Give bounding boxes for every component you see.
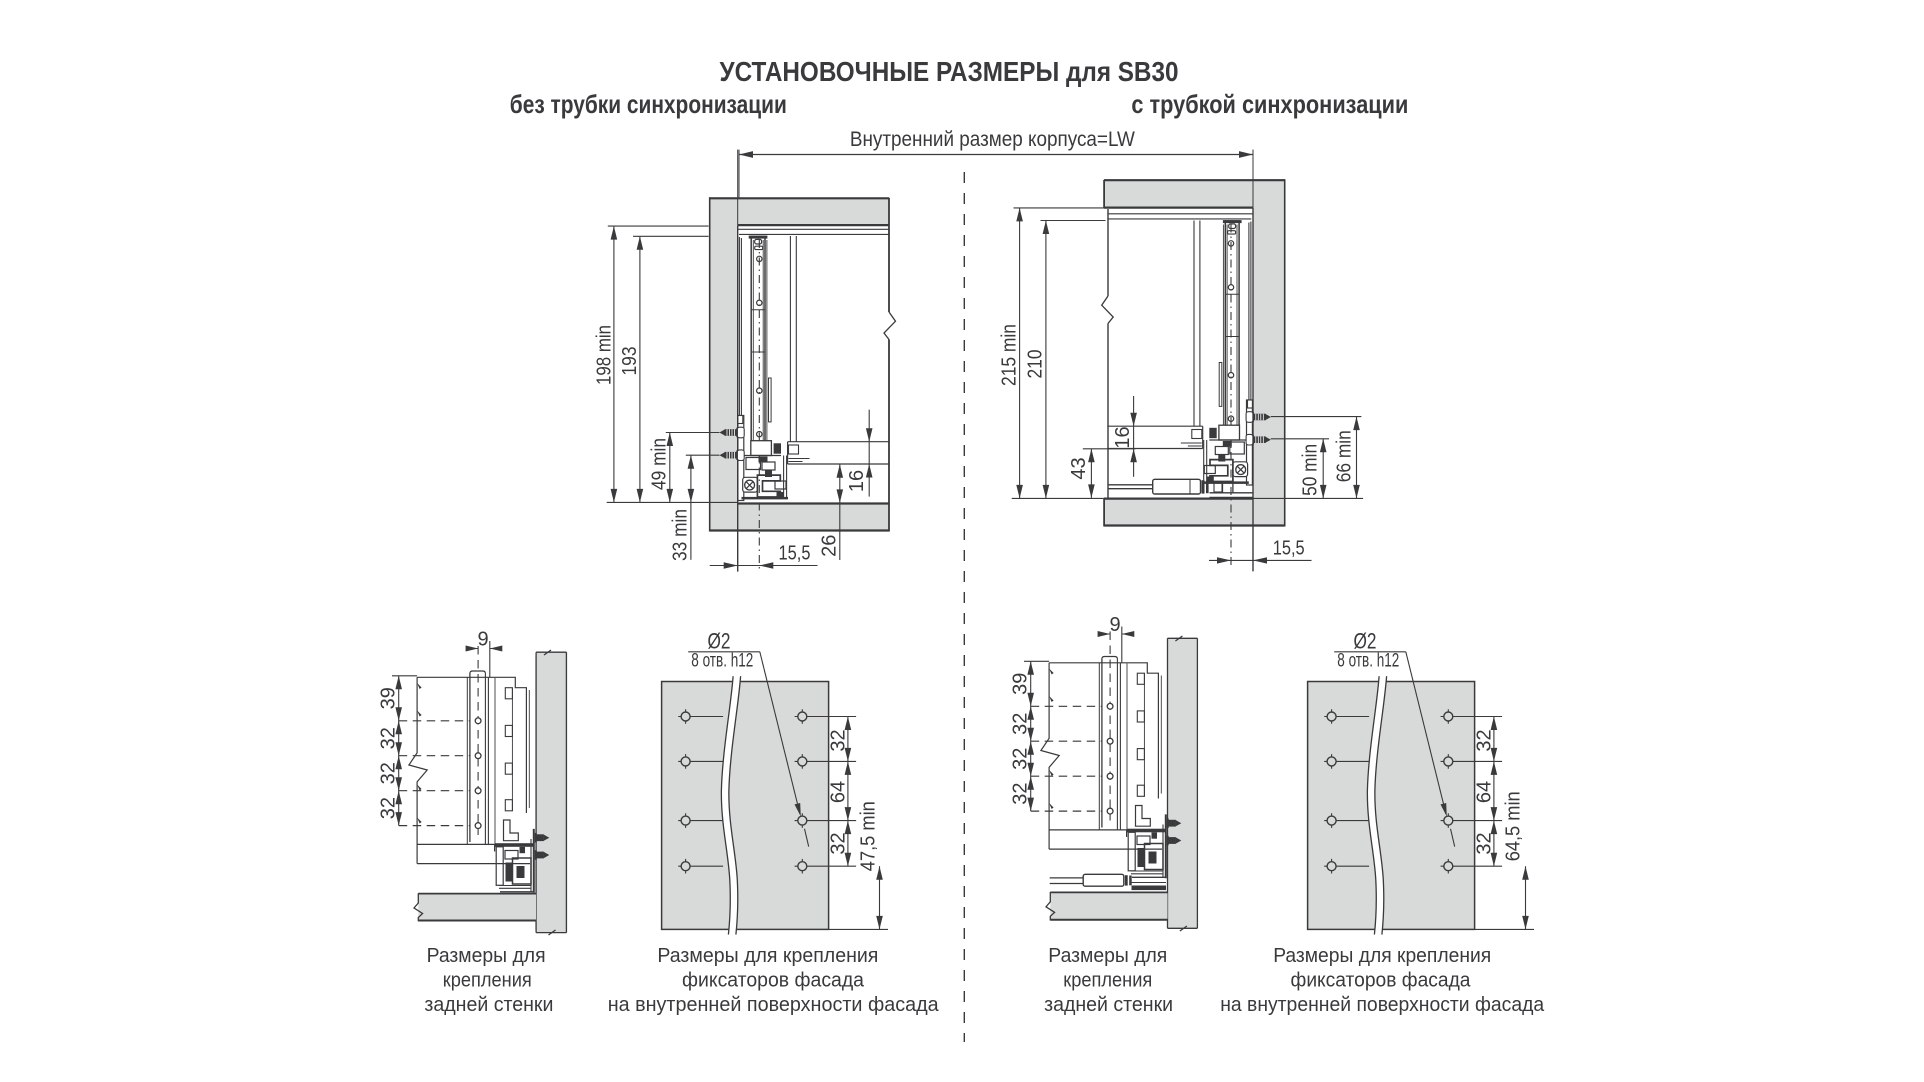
svg-text:с трубкой синхронизации: с трубкой синхронизации bbox=[1131, 89, 1408, 119]
svg-text:15,5: 15,5 bbox=[779, 543, 811, 565]
svg-text:198 min: 198 min bbox=[594, 325, 616, 385]
svg-text:Внутренний размер корпуса=LW: Внутренний размер корпуса=LW bbox=[850, 127, 1136, 151]
svg-text:фиксаторов фасада: фиксаторов фасада bbox=[682, 969, 865, 992]
svg-text:215 min: 215 min bbox=[999, 324, 1021, 386]
svg-text:16: 16 bbox=[846, 470, 868, 492]
svg-text:без трубки синхронизации: без трубки синхронизации bbox=[510, 89, 787, 119]
svg-text:Размеры для: Размеры для bbox=[1048, 944, 1167, 967]
svg-text:47,5 min: 47,5 min bbox=[858, 801, 880, 871]
svg-text:на внутренней поверхности фаса: на внутренней поверхности фасада bbox=[608, 993, 940, 1016]
svg-text:15,5: 15,5 bbox=[1273, 538, 1305, 560]
svg-text:Размеры для крепления: Размеры для крепления bbox=[657, 944, 878, 967]
svg-text:43: 43 bbox=[1068, 457, 1090, 479]
svg-text:50 min: 50 min bbox=[1300, 444, 1322, 496]
svg-text:крепления: крепления bbox=[1063, 969, 1152, 992]
svg-text:УСТАНОВОЧНЫЕ РАЗМЕРЫ для SB30: УСТАНОВОЧНЫЕ РАЗМЕРЫ для SB30 bbox=[720, 56, 1179, 87]
svg-text:задней стенки: задней стенки bbox=[424, 993, 553, 1016]
svg-text:64,5 min: 64,5 min bbox=[1502, 791, 1524, 861]
svg-text:задней стенки: задней стенки bbox=[1044, 993, 1173, 1016]
svg-text:26: 26 bbox=[819, 535, 841, 557]
svg-text:16: 16 bbox=[1112, 426, 1134, 448]
svg-text:на внутренней поверхности фаса: на внутренней поверхности фасада bbox=[1220, 993, 1545, 1016]
svg-text:66 min: 66 min bbox=[1333, 430, 1355, 482]
svg-text:Размеры для крепления: Размеры для крепления bbox=[1273, 944, 1491, 967]
svg-text:49 min: 49 min bbox=[648, 438, 670, 490]
svg-text:фиксаторов фасада: фиксаторов фасада bbox=[1291, 969, 1472, 992]
svg-text:33 min: 33 min bbox=[670, 509, 692, 561]
svg-text:193: 193 bbox=[619, 347, 641, 376]
svg-text:210: 210 bbox=[1025, 350, 1047, 379]
svg-text:крепления: крепления bbox=[443, 969, 532, 992]
svg-text:Размеры для: Размеры для bbox=[427, 944, 546, 967]
